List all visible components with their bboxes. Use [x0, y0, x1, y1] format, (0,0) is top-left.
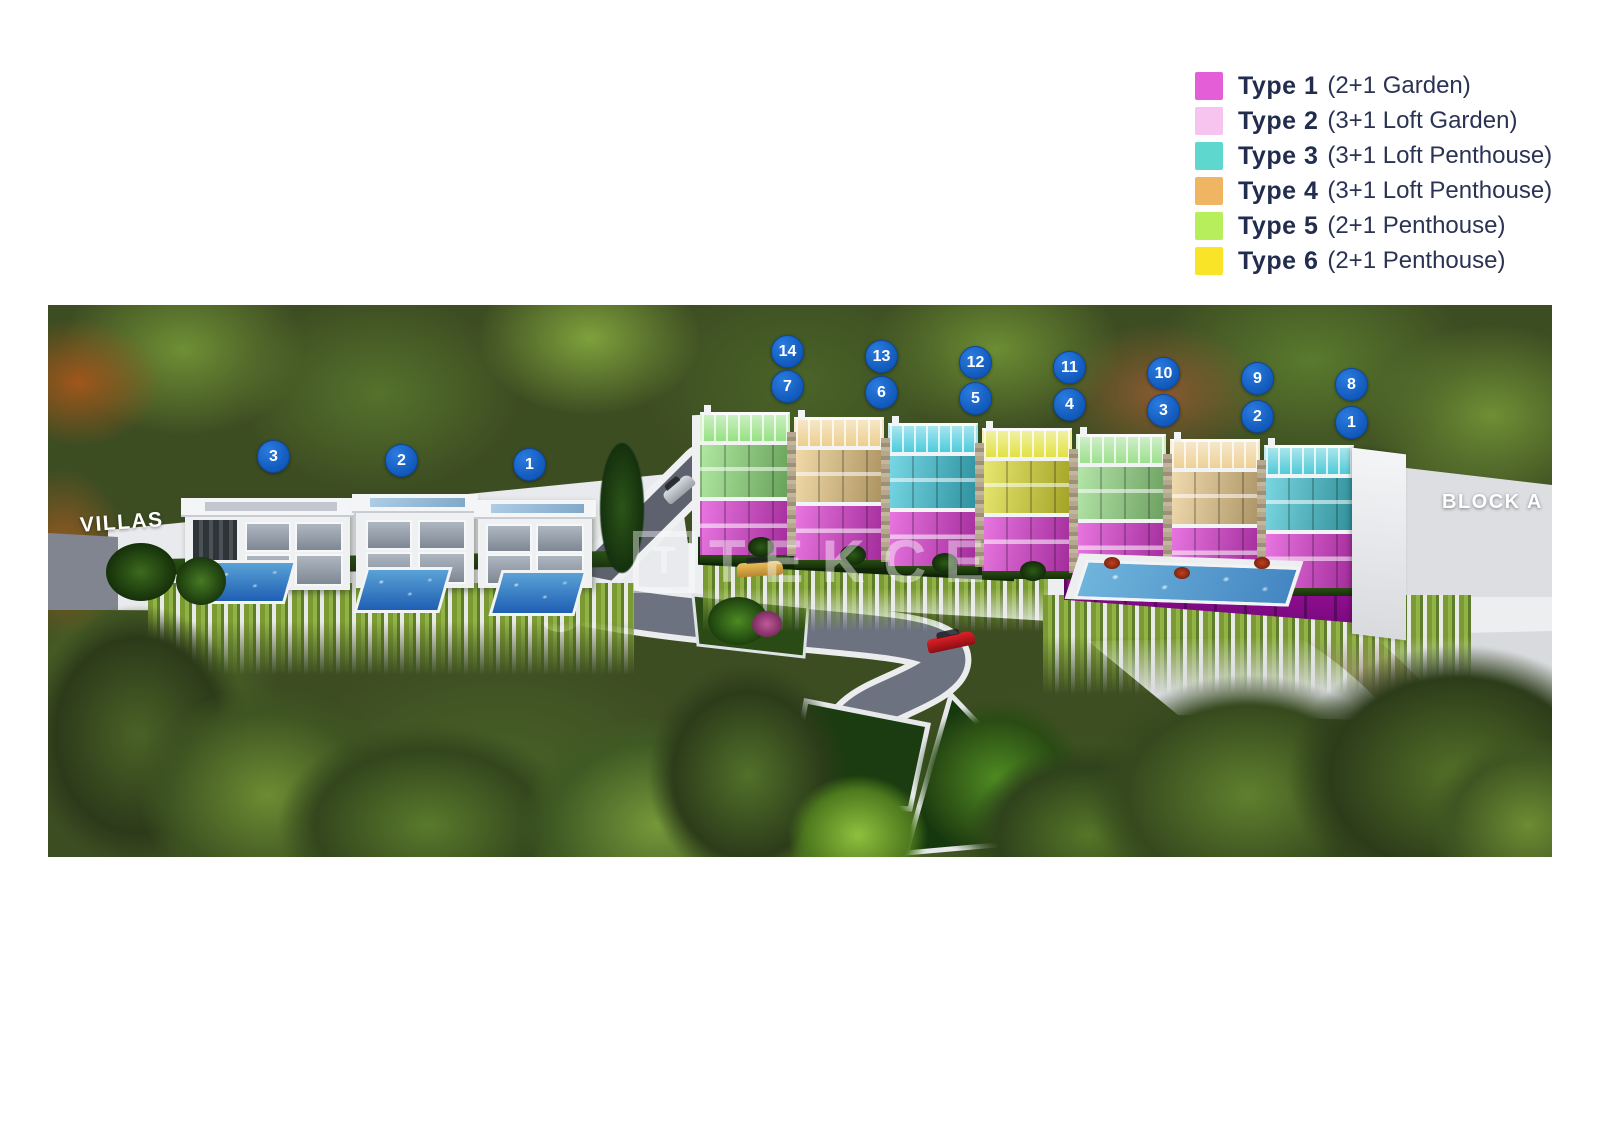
type5-label: Type 5	[1238, 212, 1318, 241]
unit-penthouse-floor	[1170, 472, 1260, 524]
villa-window	[536, 524, 584, 553]
villa-window	[418, 520, 466, 550]
garden-bush	[176, 557, 226, 605]
garden-bush	[106, 543, 176, 601]
villa-2-badge: 2	[385, 444, 418, 477]
unit-7-badge: 7	[771, 370, 804, 403]
unit-penthouse-floor	[794, 450, 884, 502]
villa-window	[366, 520, 412, 550]
unit-3-badge: 3	[1147, 394, 1180, 427]
unit-2-badge: 2	[1241, 400, 1274, 433]
villa-window	[295, 554, 343, 586]
unit-terrace	[1170, 439, 1260, 468]
unit-terrace	[888, 423, 978, 452]
unit-terrace	[700, 412, 790, 441]
unit-type-legend: Type 1 (2+1 Garden) Type 2 (3+1 Loft Gar…	[1195, 72, 1575, 282]
unit-8-badge: 8	[1335, 368, 1368, 401]
villa-window	[245, 522, 291, 552]
villa-roof	[181, 498, 354, 517]
villa-roof	[474, 500, 596, 519]
villa-window	[295, 522, 343, 552]
unit-terrace	[794, 417, 884, 446]
type4-color-swatch	[1195, 177, 1223, 205]
type4-desc: (3+1 Loft Penthouse)	[1327, 177, 1552, 205]
unit-1-badge: 1	[1335, 406, 1368, 439]
type2-color-swatch	[1195, 107, 1223, 135]
legend-row: Type 4 (3+1 Loft Penthouse)	[1195, 177, 1575, 205]
unit-14-badge: 14	[771, 335, 804, 368]
villa-window	[486, 524, 532, 553]
villa-1-badge: 1	[513, 448, 546, 481]
legend-row: Type 1 (2+1 Garden)	[1195, 72, 1575, 100]
block-a-label: BLOCK A	[1442, 491, 1543, 514]
site-plan-render: T TEKCE VILLAS BLOCK A 3 2 1 14 13 12 11…	[48, 305, 1552, 857]
villa-pool	[353, 567, 452, 613]
tekce-watermark: T TEKCE	[633, 527, 1002, 596]
red-shrub	[1104, 557, 1120, 569]
unit-penthouse-floor	[1076, 467, 1166, 519]
legend-row: Type 3 (3+1 Loft Penthouse)	[1195, 142, 1575, 170]
type4-label: Type 4	[1238, 177, 1318, 206]
villa-roof-deck	[491, 504, 584, 513]
unit-11-badge: 11	[1053, 351, 1086, 384]
unit-4-badge: 4	[1053, 388, 1086, 421]
unit-terrace	[982, 428, 1072, 457]
tekce-watermark-text: TEKCE	[709, 527, 1002, 596]
tekce-logo: T	[633, 531, 695, 593]
block-right-end-wall	[1352, 448, 1406, 641]
red-shrub	[1254, 557, 1270, 569]
villa-3-badge: 3	[257, 440, 290, 473]
type3-desc: (3+1 Loft Penthouse)	[1327, 142, 1552, 170]
unit-penthouse-floor	[700, 445, 790, 497]
legend-row: Type 2 (3+1 Loft Garden)	[1195, 107, 1575, 135]
unit-penthouse-floor	[982, 461, 1072, 513]
legend-row: Type 5 (2+1 Penthouse)	[1195, 212, 1575, 240]
red-shrub	[1174, 567, 1190, 579]
unit-6-badge: 6	[865, 376, 898, 409]
page: { "legend": { "items": [ {"label": "Type…	[0, 0, 1600, 1131]
stone-pillar	[1069, 449, 1078, 573]
villa-roof	[352, 494, 478, 513]
palm-bush	[1020, 561, 1046, 581]
type1-desc: (2+1 Garden)	[1327, 72, 1470, 100]
type2-label: Type 2	[1238, 107, 1318, 136]
unit-13-badge: 13	[865, 340, 898, 373]
unit-penthouse-floor	[1264, 478, 1354, 530]
type6-color-swatch	[1195, 247, 1223, 275]
type2-desc: (3+1 Loft Garden)	[1327, 107, 1517, 135]
villa-roof-inset	[205, 502, 336, 511]
unit-12-badge: 12	[959, 346, 992, 379]
type1-label: Type 1	[1238, 72, 1318, 101]
villa-pool	[488, 570, 587, 616]
type3-label: Type 3	[1238, 142, 1318, 171]
flower-bush	[752, 611, 782, 637]
unit-10-badge: 10	[1147, 357, 1180, 390]
type5-color-swatch	[1195, 212, 1223, 240]
unit-terrace	[1076, 434, 1166, 463]
legend-row: Type 6 (2+1 Penthouse)	[1195, 247, 1575, 275]
unit-9-badge: 9	[1241, 362, 1274, 395]
unit-penthouse-floor	[888, 456, 978, 508]
type1-color-swatch	[1195, 72, 1223, 100]
villa-roof-deck	[370, 498, 466, 507]
type5-desc: (2+1 Penthouse)	[1327, 212, 1505, 240]
unit-5-badge: 5	[959, 382, 992, 415]
unit-terrace	[1264, 445, 1354, 474]
type6-label: Type 6	[1238, 247, 1318, 276]
type6-desc: (2+1 Penthouse)	[1327, 247, 1505, 275]
type3-color-swatch	[1195, 142, 1223, 170]
